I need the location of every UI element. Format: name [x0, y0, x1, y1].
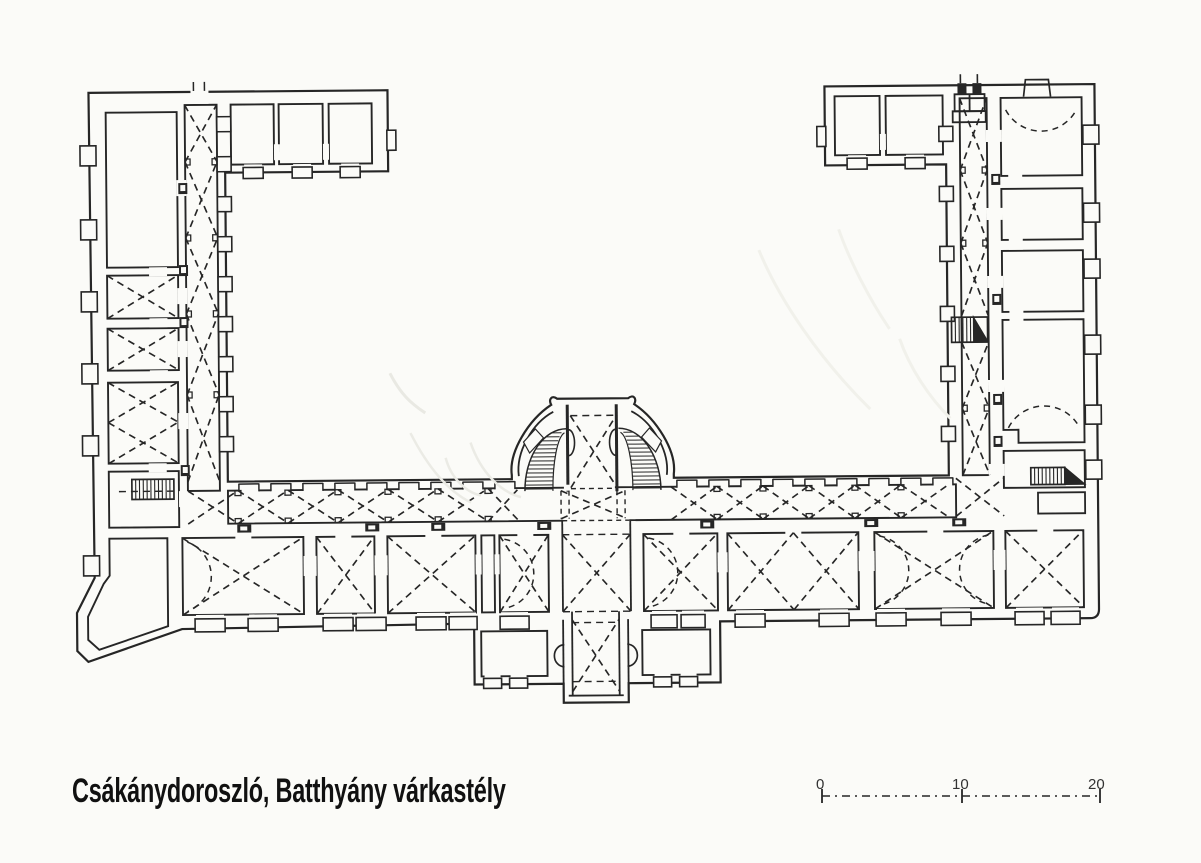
svg-text:10: 10	[952, 776, 969, 793]
svg-text:20: 20	[1088, 776, 1105, 793]
svg-text:0: 0	[816, 776, 824, 793]
